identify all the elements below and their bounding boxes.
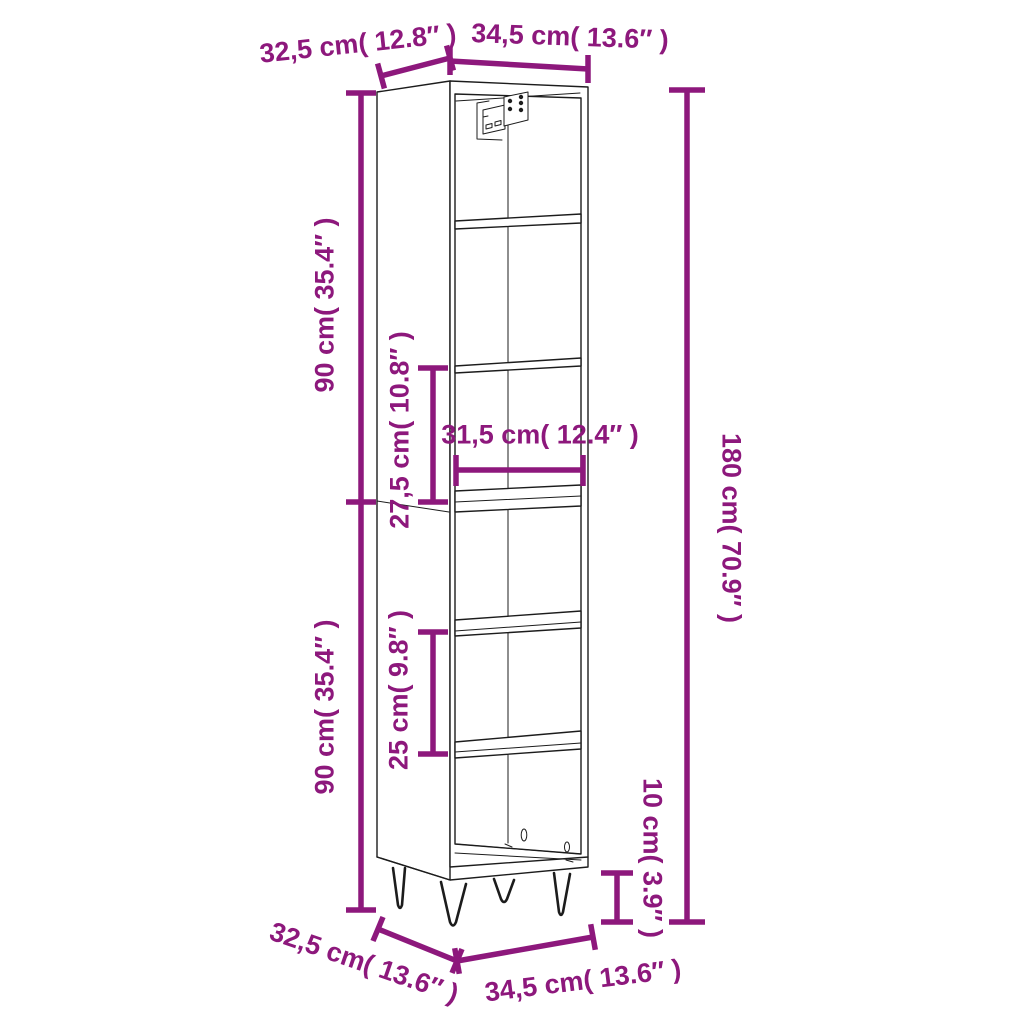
cabinet-leg	[494, 879, 514, 902]
dim-line-leg-height	[601, 873, 633, 922]
dimension-diagram: 32,5 cm( 12.8″ ) 34,5 cm( 13.6″ ) 90 cm(…	[0, 0, 1024, 1024]
dim-line-top-width	[450, 47, 588, 83]
dim-line-upper-height	[346, 93, 376, 502]
cabinet-leg	[554, 873, 570, 915]
dim-label-leg-height: 10 cm( 3.9″ )	[639, 778, 666, 938]
cabinet-leg	[441, 882, 466, 926]
cabinet-leg	[393, 868, 405, 908]
dim-line-total-height	[669, 90, 705, 922]
dim-line-lower-height	[346, 502, 376, 910]
dim-label-lower-height: 90 cm( 35.4″ )	[312, 619, 339, 794]
dim-label-top-width: 34,5 cm( 13.6″ )	[471, 20, 669, 54]
dim-label-total-height: 180 cm( 70.9″ )	[718, 433, 745, 623]
dim-label-upper-compartment: 27,5 cm( 10.8″ )	[387, 331, 414, 529]
dim-label-upper-height: 90 cm( 35.4″ )	[312, 217, 339, 392]
dim-label-lower-compartment: 25 cm( 9.8″ )	[386, 610, 413, 770]
dim-label-shelf-width: 31,5 cm( 12.4″ )	[441, 422, 639, 449]
diagram-canvas	[0, 0, 1024, 1024]
